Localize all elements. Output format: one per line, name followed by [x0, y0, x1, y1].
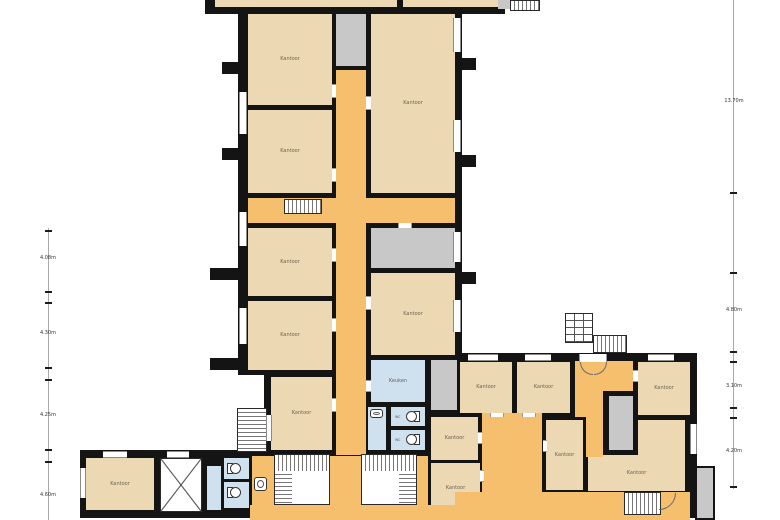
room-label: Kantoor	[280, 260, 300, 265]
cutoff-room	[215, 0, 397, 7]
door-opening	[398, 223, 412, 228]
wall-stub	[222, 62, 238, 74]
window	[266, 415, 272, 441]
room-label: Kantoor	[445, 436, 465, 441]
stair-flight	[275, 455, 329, 471]
dimension-label: 4.08m	[35, 256, 61, 261]
toilet-icon	[406, 432, 420, 445]
washbasin-icon	[254, 477, 267, 491]
door-opening	[579, 354, 607, 362]
toilet-icon	[227, 461, 241, 474]
staircase-icon	[361, 454, 417, 505]
door-opening	[366, 96, 371, 110]
corridor-tower-band	[248, 198, 455, 223]
door-opening	[633, 370, 638, 382]
window	[648, 354, 674, 361]
dimension-tick	[730, 192, 737, 194]
wall-stub	[210, 268, 238, 280]
room-east-office-2: Kantoor	[517, 362, 570, 413]
room-label: Kantoor	[534, 385, 554, 390]
cutoff-room	[403, 0, 498, 7]
wall-stub	[462, 155, 476, 167]
window	[167, 451, 189, 458]
staircase-icon	[624, 492, 661, 515]
dimension-tick	[45, 449, 52, 451]
room-label: Kantoor	[292, 411, 312, 416]
room-label: Kantoor	[403, 101, 423, 106]
window	[239, 212, 247, 246]
dimension-tick	[45, 230, 52, 232]
door-opening	[522, 413, 536, 417]
window	[453, 18, 461, 52]
dimension-tick	[730, 486, 737, 488]
room-east-office-6: Kantoor	[588, 455, 685, 491]
room-east-office-5: Kantoor	[546, 420, 583, 490]
window	[525, 354, 551, 361]
stair-flight	[399, 471, 416, 504]
elevator-icon	[160, 458, 202, 512]
wall-stub	[462, 272, 476, 284]
room-label: Kantoor	[555, 453, 575, 458]
dimension-label: 4.20m	[720, 449, 748, 454]
dimension-tick	[45, 379, 52, 381]
window	[453, 120, 461, 152]
dimension-tick	[730, 361, 737, 363]
corridor-center-gap	[417, 456, 428, 514]
toilet-icon	[227, 485, 241, 498]
dimension-label: 4.80m	[720, 308, 748, 313]
exterior-shaft-box	[695, 466, 715, 520]
window	[80, 468, 86, 498]
dimension-tick	[730, 351, 737, 353]
room-label: Kantoor	[280, 57, 300, 62]
dimension-tick	[45, 291, 52, 293]
window	[690, 424, 697, 454]
wall-stub	[205, 0, 215, 14]
room-kitchen: Keuken	[371, 360, 425, 402]
dimension-label: 4.60m	[35, 493, 61, 498]
room-label: Kantoor	[627, 471, 647, 476]
wall-stub	[210, 358, 238, 370]
cutoff-shaft	[498, 0, 510, 9]
wall-stub	[462, 58, 476, 70]
room-label: Kantoor	[476, 385, 496, 390]
stair-flight	[362, 455, 416, 471]
room-label: Kantoor	[280, 149, 300, 154]
shaft-tower-low	[431, 360, 457, 410]
room-label: Kantoor	[446, 486, 466, 491]
room-east-office-4: Kantoor	[431, 417, 478, 460]
dimension-label: 13.70m	[718, 99, 750, 104]
door-opening	[332, 318, 336, 332]
room-tower-office-4: Kantoor	[248, 228, 332, 296]
room-west-office: Kantoor	[86, 458, 154, 510]
door-opening	[332, 248, 336, 262]
exterior-stairs-icon	[237, 408, 267, 452]
window	[453, 300, 461, 332]
room-label: Kantoor	[280, 333, 300, 338]
room-east-office-1: Kantoor	[460, 362, 512, 413]
toilet-icon	[406, 409, 420, 422]
room-east-office-3: Kantoor	[638, 362, 690, 415]
window	[468, 354, 498, 361]
fire-escape-stairs-icon	[593, 335, 627, 353]
dimension-tick	[45, 461, 52, 463]
room-tower-office-3: Kantoor	[371, 14, 455, 193]
door-opening	[490, 413, 504, 417]
room-east-office-6-upper	[638, 420, 685, 460]
wall-stub	[222, 148, 238, 160]
staircase-icon	[274, 454, 330, 505]
dimension-tick	[730, 272, 737, 274]
shaft-tower-top	[336, 14, 366, 66]
window	[239, 92, 247, 134]
door-opening	[332, 84, 336, 98]
room-tower-office-5: Kantoor	[248, 301, 332, 370]
door-opening	[480, 470, 484, 482]
room-tower-office-2: Kantoor	[248, 110, 332, 193]
dimension-label: 4.30m	[35, 331, 61, 336]
door-opening	[332, 398, 336, 412]
elevator-shaft-east	[609, 396, 633, 450]
corridor-tower-vertical	[336, 70, 366, 455]
floor-plan: Kantoor Kantoor Kantoor Kantoor Kantoor …	[0, 0, 780, 520]
room-label: wc	[395, 415, 400, 419]
door-opening	[366, 296, 371, 310]
washbasin-icon	[370, 409, 383, 418]
dimension-tick	[730, 417, 737, 419]
corridor-east-sliver	[586, 417, 603, 457]
dimension-tick	[45, 367, 52, 369]
room-label: Kantoor	[654, 386, 674, 391]
room-label: Kantoor	[110, 482, 130, 487]
exterior-stairs-icon	[510, 0, 540, 11]
dimension-tick	[730, 407, 737, 409]
door-opening	[332, 168, 336, 182]
dimension-line-left	[48, 228, 49, 520]
door-opening	[366, 380, 371, 392]
window	[453, 232, 461, 262]
staircase-icon	[284, 199, 322, 214]
door-opening	[543, 440, 547, 452]
shower-cell	[207, 466, 221, 510]
room-label: Keuken	[389, 379, 407, 384]
stair-flight	[275, 471, 292, 504]
dimension-line-right	[733, 0, 734, 489]
door-opening	[478, 432, 482, 444]
shaft-tower-mid	[371, 228, 455, 268]
dimension-label: 3.10m	[720, 384, 748, 389]
dimension-tick	[45, 302, 52, 304]
fire-escape-platform	[565, 313, 593, 343]
dimension-label: 4.25m	[35, 413, 61, 418]
window	[103, 451, 127, 458]
room-tower-office-7: Kantoor	[271, 377, 332, 450]
room-tower-office-1: Kantoor	[248, 14, 332, 105]
room-label: Kantoor	[403, 312, 423, 317]
window	[239, 308, 247, 344]
room-tower-office-6: Kantoor	[371, 273, 455, 355]
room-label: wc	[395, 438, 400, 442]
